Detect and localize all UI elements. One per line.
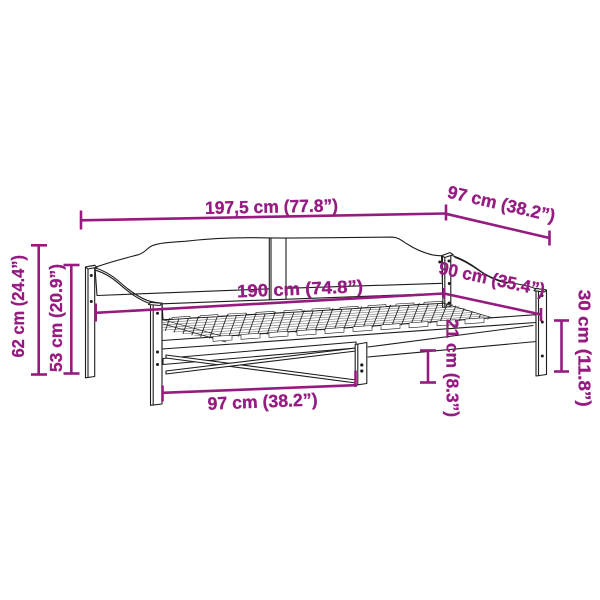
svg-text:21 cm (8.3”): 21 cm (8.3”) xyxy=(443,319,463,417)
svg-text:62 cm (24.4”): 62 cm (24.4”) xyxy=(8,255,28,358)
svg-text:30 cm (11.8”): 30 cm (11.8”) xyxy=(575,290,595,407)
svg-text:97 cm (38.2”): 97 cm (38.2”) xyxy=(207,389,318,413)
svg-text:197,5 cm (77.8”): 197,5 cm (77.8”) xyxy=(205,195,338,218)
svg-text:53 cm (20.9”): 53 cm (20.9”) xyxy=(46,264,66,372)
